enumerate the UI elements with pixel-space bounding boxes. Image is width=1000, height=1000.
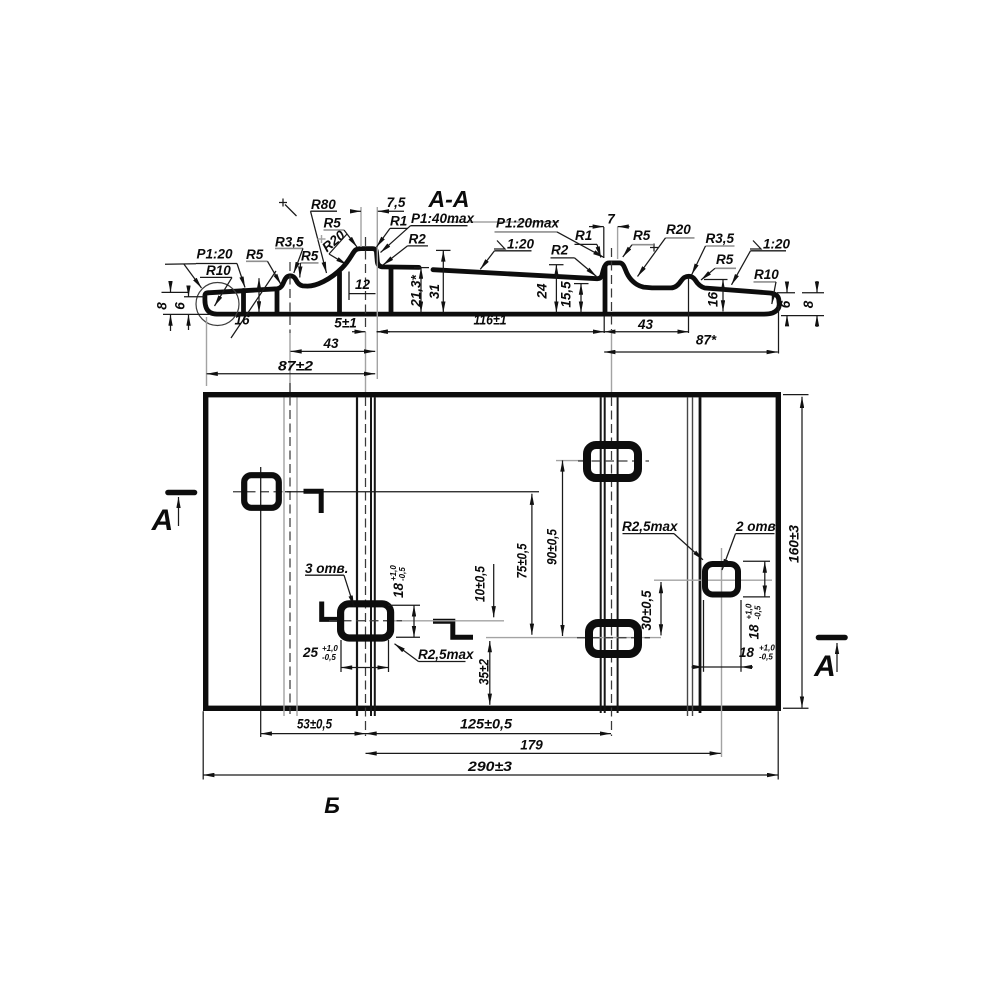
svg-text:7: 7	[607, 212, 616, 227]
svg-text:15,5: 15,5	[559, 281, 574, 308]
svg-text:R5: R5	[716, 252, 734, 267]
svg-text:2 отв.: 2 отв.	[735, 519, 779, 534]
svg-text:R10: R10	[206, 263, 231, 278]
svg-text:6: 6	[173, 302, 188, 310]
svg-text:R2: R2	[551, 243, 569, 258]
svg-text:18: 18	[747, 624, 762, 640]
svg-text:P1:20max: P1:20max	[496, 216, 560, 231]
svg-text:P1:20: P1:20	[197, 247, 234, 262]
svg-text:290±3: 290±3	[467, 759, 513, 774]
svg-text:43: 43	[322, 336, 339, 351]
svg-text:18: 18	[739, 645, 755, 660]
svg-text:-0,5: -0,5	[759, 653, 773, 662]
svg-text:7,5: 7,5	[387, 195, 406, 210]
svg-text:160±3: 160±3	[787, 525, 802, 563]
svg-text:179: 179	[520, 738, 543, 753]
svg-text:35±2: 35±2	[477, 659, 492, 685]
svg-text:31: 31	[427, 284, 442, 299]
svg-text:90±0,5: 90±0,5	[545, 529, 560, 565]
svg-text:5±1: 5±1	[334, 316, 356, 331]
svg-text:R3,5: R3,5	[706, 231, 735, 246]
svg-text:R3,5: R3,5	[275, 235, 304, 250]
svg-text:A-A: A-A	[428, 186, 470, 212]
svg-text:87*: 87*	[696, 333, 717, 348]
svg-text:16: 16	[234, 313, 250, 328]
svg-text:-0,5: -0,5	[322, 653, 336, 662]
svg-text:+1,0: +1,0	[322, 644, 338, 653]
svg-text:R5: R5	[246, 247, 264, 262]
svg-text:8: 8	[155, 302, 170, 310]
svg-text:R20: R20	[666, 222, 691, 237]
svg-text:125±0,5: 125±0,5	[460, 717, 513, 732]
svg-text:R5: R5	[301, 249, 319, 264]
svg-text:R10: R10	[754, 267, 779, 282]
svg-text:10±0,5: 10±0,5	[473, 566, 488, 602]
svg-text:30±0,5: 30±0,5	[639, 590, 654, 630]
svg-text:24: 24	[535, 283, 550, 300]
svg-text:8: 8	[801, 300, 816, 308]
svg-text:R2,5max: R2,5max	[622, 519, 678, 534]
svg-text:53±0,5: 53±0,5	[297, 717, 332, 732]
svg-text:Б: Б	[324, 793, 340, 818]
svg-text:A: A	[813, 650, 836, 683]
svg-text:-0,5: -0,5	[754, 605, 763, 619]
svg-text:R1: R1	[390, 214, 407, 229]
svg-text:P1:40max: P1:40max	[411, 211, 475, 226]
svg-text:25: 25	[302, 645, 319, 660]
svg-text:21,3*: 21,3*	[409, 274, 424, 307]
svg-text:A: A	[151, 504, 174, 537]
svg-text:3 отв.: 3 отв.	[305, 561, 348, 576]
svg-text:R20: R20	[319, 227, 348, 255]
svg-text:18: 18	[391, 582, 406, 598]
svg-text:R2: R2	[409, 232, 427, 247]
svg-text:R80: R80	[311, 197, 336, 212]
svg-text:43: 43	[637, 317, 654, 332]
svg-text:87±2: 87±2	[278, 359, 314, 374]
svg-text:6: 6	[778, 300, 793, 308]
svg-text:116±1: 116±1	[474, 313, 507, 328]
svg-text:-0,5: -0,5	[398, 567, 407, 581]
svg-text:16: 16	[706, 292, 721, 308]
svg-text:75±0,5: 75±0,5	[515, 543, 530, 578]
svg-text:+1,0: +1,0	[389, 565, 398, 581]
svg-text:1:20: 1:20	[763, 237, 791, 252]
svg-text:R5: R5	[633, 228, 651, 243]
svg-text:12: 12	[355, 277, 371, 292]
svg-text:1:20: 1:20	[507, 237, 535, 252]
svg-text:R2,5max: R2,5max	[418, 647, 474, 662]
svg-text:+1,0: +1,0	[759, 644, 775, 653]
svg-text:R1: R1	[575, 228, 592, 243]
svg-text:+1,0: +1,0	[745, 603, 754, 619]
